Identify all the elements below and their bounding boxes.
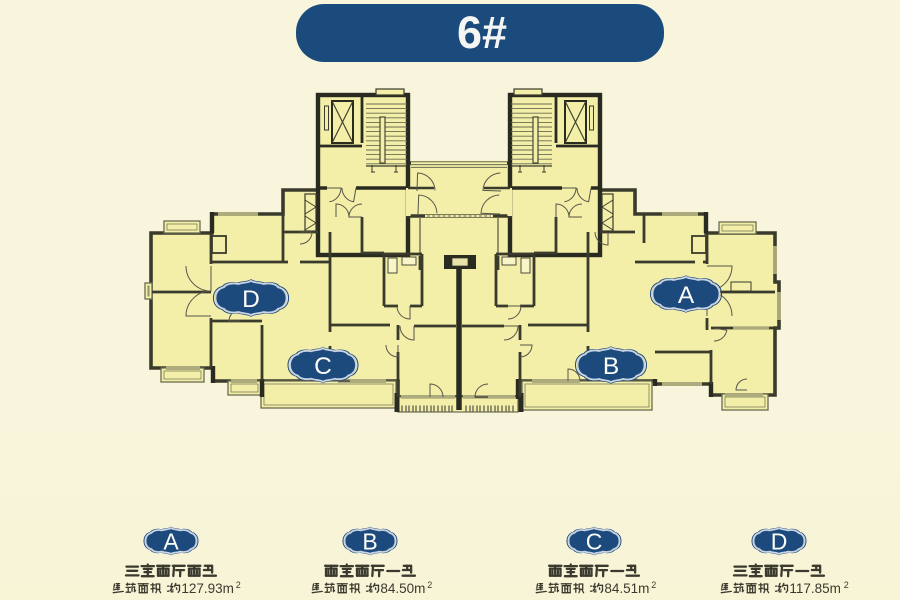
svg-text:C: C: [586, 528, 603, 554]
svg-text:117.85m: 117.85m: [789, 581, 841, 596]
svg-text:84.51m: 84.51m: [604, 581, 649, 596]
svg-text:127.93m: 127.93m: [181, 581, 234, 596]
svg-text:6#: 6#: [457, 7, 507, 58]
svg-text:D: D: [242, 286, 260, 313]
svg-text:C: C: [314, 353, 332, 380]
svg-text:B: B: [362, 528, 377, 554]
svg-text:2: 2: [844, 580, 849, 590]
svg-text:B: B: [603, 353, 619, 380]
svg-text:2: 2: [427, 580, 432, 590]
svg-text:2: 2: [236, 580, 241, 590]
svg-text:84.50m: 84.50m: [380, 581, 425, 596]
svg-text:A: A: [678, 282, 695, 309]
svg-text:2: 2: [651, 580, 656, 590]
svg-text:A: A: [163, 528, 179, 554]
svg-text:D: D: [771, 528, 788, 554]
